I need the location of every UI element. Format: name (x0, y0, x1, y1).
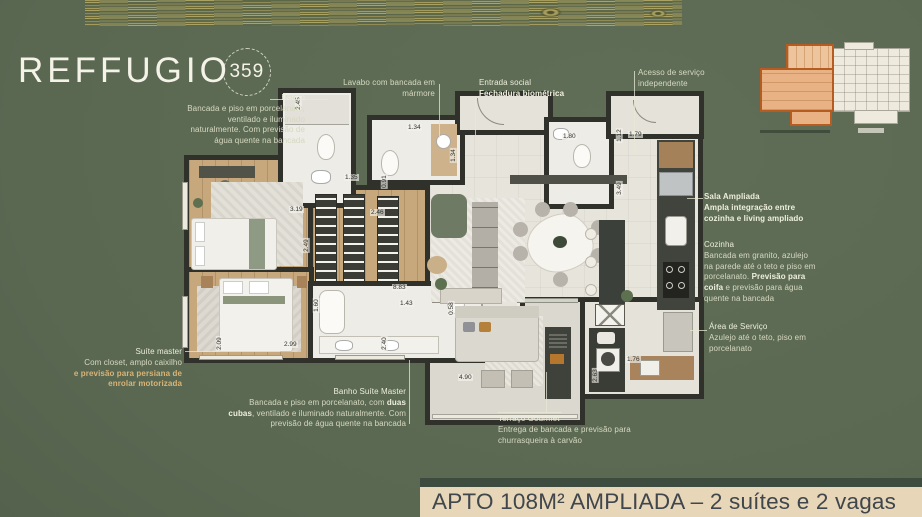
window (182, 182, 188, 230)
stool (585, 284, 597, 296)
window (182, 296, 188, 348)
vanity-counter (431, 124, 457, 176)
brand-logo: REFFUGIO 359 (18, 40, 271, 88)
bbq-accent (550, 354, 564, 364)
terrace-chair (481, 370, 505, 388)
annotation-body: Ampla integração entre cozinha e living … (704, 203, 803, 223)
annotation-banho-master: Banho Suíte Master Bancada e piso em por… (228, 387, 406, 430)
annotation-title: Terraço Gourmet (498, 414, 673, 425)
kitchen-sink (665, 216, 687, 246)
burner (666, 282, 673, 289)
annotation-lavabo: Lavabo com bancada em mármore (340, 78, 435, 100)
annotation-suite-master: Suíte master Com closet, amplo caixilho … (60, 347, 182, 390)
washer-door (601, 352, 615, 366)
annotation-banho: Banho Bancada e piso em porcelanato, ven… (185, 93, 305, 147)
burner (666, 266, 673, 273)
annotation-body: Acesso de serviço independente (638, 68, 705, 88)
laundry-cabinet (663, 312, 693, 352)
desk (199, 166, 255, 178)
bbq-grill (549, 334, 567, 348)
appliance (640, 360, 660, 376)
toilet (573, 144, 591, 168)
keyplan-wing-right (832, 48, 910, 112)
window (199, 355, 283, 360)
wardrobe (377, 196, 399, 282)
annotation-title: Banho (185, 93, 305, 104)
stool (585, 228, 597, 240)
pillow (223, 281, 243, 294)
pillow (195, 222, 205, 242)
terrace-chair (511, 370, 533, 388)
leader-line (409, 360, 410, 424)
floor-plan-page: REFFUGIO 359 (0, 0, 922, 517)
leader-line (687, 198, 703, 199)
sofa-back (455, 306, 539, 318)
toilet (317, 134, 335, 160)
annotation-acesso-servico: Acesso de serviço independente (638, 68, 743, 90)
sink (381, 340, 399, 351)
annotation-sala-ampliada: Sala Ampliada Ampla integração entre coz… (704, 192, 816, 224)
annotation-highlight: e previsão para persiana de enrolar moto… (60, 369, 182, 391)
sink (553, 128, 569, 140)
annotation-cozinha: Cozinha Bancada em granito, azulejo na p… (704, 240, 818, 305)
keyplan-caption-chip (858, 128, 884, 133)
keyplan-unit-tab (790, 110, 832, 126)
leader-line (634, 71, 635, 153)
apartment-title: APTO 108M² AMPLIADA – 2 suítes e 2 vagas (432, 489, 896, 515)
brand-number: 359 (229, 61, 264, 83)
bed-throw (249, 219, 265, 269)
leader-line (546, 372, 547, 413)
brand-number-circle: 359 (223, 48, 271, 96)
annotation-title: Banho Suíte Master (228, 387, 406, 398)
sink (311, 170, 331, 184)
leader-line (439, 84, 440, 138)
armchair (431, 194, 467, 238)
annotation-body: Lavabo com bancada em mármore (343, 78, 435, 98)
plant (435, 278, 447, 290)
window (335, 355, 405, 360)
leader-line (690, 330, 707, 331)
annotation-body: Com closet, amplo caixilho (84, 358, 182, 367)
nightstand (297, 276, 307, 288)
sideboard (440, 288, 502, 304)
leader-line (185, 351, 280, 352)
keyplan-unit-main (760, 68, 834, 112)
fridge (659, 172, 693, 196)
annotation-title: Sala Ampliada (704, 192, 816, 203)
burner (678, 266, 685, 273)
sofa-cushion (463, 322, 475, 332)
pillow (195, 246, 205, 266)
room-entry (460, 96, 548, 130)
nightstand (201, 276, 213, 288)
sideboard-top (510, 175, 627, 184)
duct-shaft (595, 304, 625, 326)
keyplan-wing-right-tab (854, 110, 898, 124)
brand-name: REFFUGIO (18, 53, 231, 88)
bathtub (319, 290, 345, 334)
annotation-title: Entrada social (479, 78, 594, 89)
keyplan-caption-line (760, 130, 830, 133)
annotation-title: Suíte master (60, 347, 182, 358)
dining-chair (563, 202, 578, 217)
sink (335, 340, 353, 351)
dining-chair (535, 202, 550, 217)
plant (621, 290, 633, 302)
wardrobe (343, 194, 365, 282)
side-table (427, 256, 447, 274)
wardrobe (315, 194, 337, 282)
table-centerpiece (553, 236, 567, 248)
stool (585, 256, 597, 268)
sofa-cushion (479, 322, 491, 332)
annotation-title: Cozinha (704, 240, 818, 251)
dining-chair (553, 272, 568, 287)
title-bar: APTO 108M² AMPLIADA – 2 suítes e 2 vagas (420, 487, 922, 517)
annotation-entrada-social: Entrada social Fechadura biométrica (479, 78, 594, 100)
bed-band (223, 296, 285, 304)
cabinet (659, 142, 693, 168)
annotation-body-pre: Bancada e piso em porcelanato, com (249, 398, 387, 407)
pillow (249, 281, 269, 294)
dining-chair (513, 246, 528, 261)
keyplan (758, 42, 918, 134)
leader-line (498, 412, 562, 413)
annotation-area-servico: Área de Serviço Azulejo até o teto, piso… (709, 322, 823, 354)
keyplan-top-tab (844, 42, 874, 50)
wood-texture-band (85, 0, 682, 26)
annotation-body: Fechadura biométrica (479, 89, 564, 98)
plant (193, 198, 203, 208)
annotation-body: Bancada e piso em porcelanato, ventilado… (187, 104, 305, 145)
burner (678, 282, 685, 289)
keyplan-unit-top (786, 44, 834, 70)
laundry-sink (597, 332, 615, 344)
annotation-terraco: Terraço Gourmet Entrega de bancada e pre… (498, 414, 673, 446)
title-bar-strip (420, 478, 922, 487)
toilet (381, 150, 399, 176)
annotation-title: Área de Serviço (709, 322, 823, 333)
dining-chair (513, 222, 528, 237)
annotation-body: Entrega de bancada e previsão para churr… (498, 425, 631, 445)
shelf-unit (472, 202, 498, 288)
annotation-body: Azulejo até o teto, piso em porcelanato (709, 333, 806, 353)
annotation-body-post: , ventilado e iluminado naturalmente. Co… (252, 409, 406, 429)
leader-line (475, 99, 476, 139)
